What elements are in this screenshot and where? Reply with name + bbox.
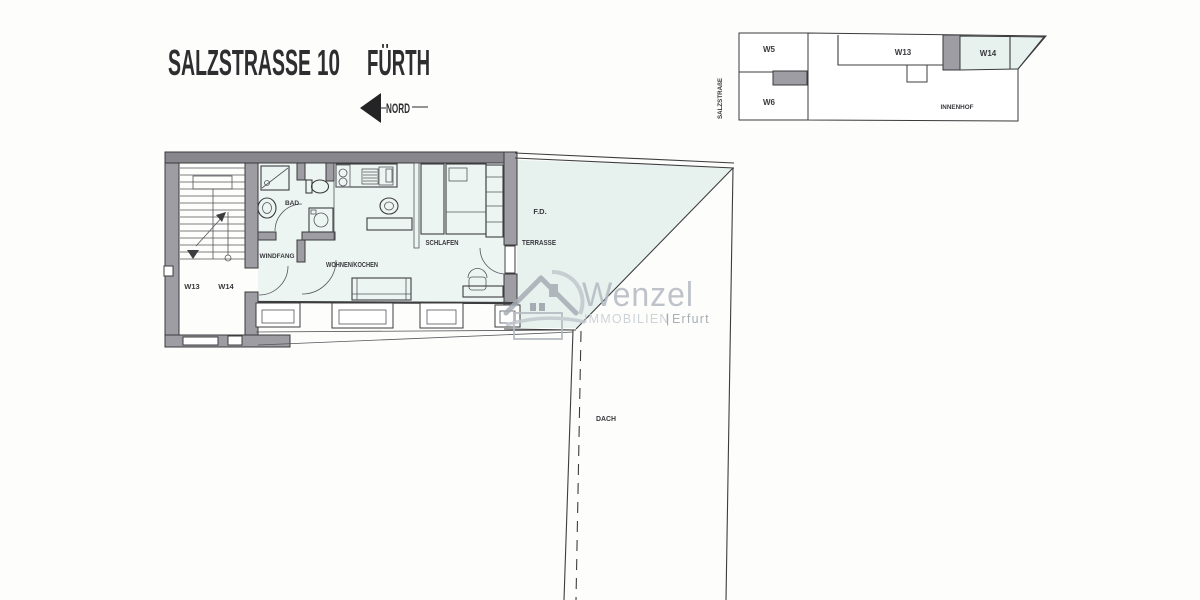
stairwell: W13 W14	[180, 168, 245, 291]
title-street: SALZSTRASSE	[168, 42, 311, 83]
site-label-innenhof: INNENHOF	[941, 104, 974, 111]
apartment-tint	[258, 163, 504, 302]
north-arrow-icon	[360, 93, 381, 123]
stair-door	[228, 336, 242, 345]
site-plan: SALZSTRAßE W5 W6 W13 W14 INNENHOF	[717, 33, 1046, 121]
floorplan-page: SALZSTRASSE 10 FÜRTH NORD SALZSTRAßE W5 …	[0, 0, 1200, 600]
title-number: 10	[317, 42, 340, 83]
roof-edge-left	[564, 330, 573, 600]
stair-start-marker	[225, 255, 231, 261]
site-label-w6: W6	[763, 98, 776, 107]
title-block: SALZSTRASSE 10 FÜRTH	[168, 42, 430, 83]
stair-down-arrow	[187, 250, 199, 259]
site-label-w14: W14	[980, 49, 997, 58]
label-dach: DACH	[596, 414, 616, 423]
logo-house-window	[530, 303, 536, 311]
logo-divider: |	[666, 312, 670, 326]
terrace-door-leaf	[505, 246, 515, 273]
label-unit-w14: W14	[218, 282, 234, 291]
site-w14-area	[960, 36, 1044, 70]
north-label: NORD	[386, 100, 410, 116]
main-plan: W13 W14 BAD	[164, 152, 734, 600]
site-stair-block-left	[773, 71, 807, 85]
label-windfang: WINDFANG	[260, 253, 295, 260]
logo-house-window	[539, 303, 545, 311]
roof-ridge-dashed	[576, 331, 581, 600]
left-wall-window	[164, 266, 173, 276]
label-wohnen-kochen: WOHNEN/KOCHEN	[326, 260, 378, 269]
floorplan-canvas: SALZSTRASSE 10 FÜRTH NORD SALZSTRAßE W5 …	[0, 0, 1200, 600]
site-street-label: SALZSTRAßE	[717, 77, 724, 119]
site-label-w5: W5	[763, 45, 776, 54]
stair-landing-upper	[193, 176, 232, 189]
north-arrow: NORD	[360, 93, 428, 123]
roof-window-2	[332, 303, 393, 328]
site-label-w13: W13	[895, 48, 912, 57]
stair-window	[183, 337, 218, 345]
label-schlafen: SCHLAFEN	[426, 238, 459, 247]
label-terrasse: TERRASSE	[522, 238, 556, 247]
logo-brand: Wenzel	[582, 276, 694, 314]
site-w13-bay	[907, 65, 927, 82]
label-bad: BAD	[285, 200, 299, 207]
roof-window-3	[420, 303, 463, 328]
roof-edge-right	[726, 168, 733, 600]
label-unit-w13: W13	[184, 282, 199, 291]
title-city: FÜRTH	[367, 42, 430, 83]
site-stair-block-right	[943, 35, 960, 70]
logo-location: Erfurt	[672, 312, 710, 326]
logo-subtitle-immobilien: IMMOBILIEN	[584, 312, 670, 326]
roof-window-1	[256, 303, 300, 327]
logo-subtitle: IMMOBILIEN | Erfurt	[584, 312, 710, 326]
label-fd: F.D.	[533, 207, 546, 216]
